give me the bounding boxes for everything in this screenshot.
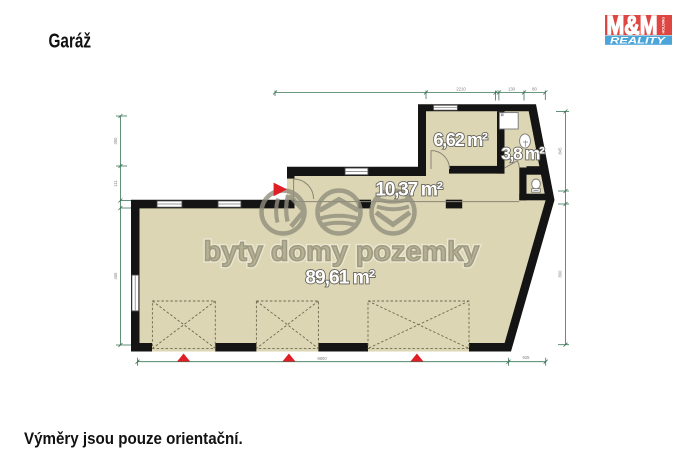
svg-text:9800: 9800 (317, 356, 327, 361)
svg-text:Výměry jsou pouze orientační.: Výměry jsou pouze orientační. (24, 430, 243, 448)
svg-text:111: 111 (113, 180, 118, 187)
svg-text:925: 925 (523, 355, 531, 360)
svg-text:REALITY: REALITY (610, 35, 667, 45)
svg-text:456: 456 (113, 272, 118, 280)
svg-text:2210: 2210 (456, 87, 466, 92)
svg-text:800: 800 (558, 270, 563, 278)
svg-text:130: 130 (508, 87, 516, 92)
svg-text:3,8 m²: 3,8 m² (501, 143, 545, 163)
svg-text:byty domy pozemky: byty domy pozemky (204, 236, 480, 267)
svg-text:HOLDING: HOLDING (662, 17, 666, 34)
svg-text:80: 80 (532, 87, 537, 92)
svg-text:350: 350 (113, 137, 118, 145)
svg-text:6,62 m²: 6,62 m² (433, 129, 488, 150)
svg-text:845: 845 (558, 147, 563, 155)
svg-text:10,37 m²: 10,37 m² (375, 179, 443, 201)
svg-text:89,61 m²: 89,61 m² (305, 267, 376, 289)
svg-text:Garáž: Garáž (49, 31, 92, 53)
